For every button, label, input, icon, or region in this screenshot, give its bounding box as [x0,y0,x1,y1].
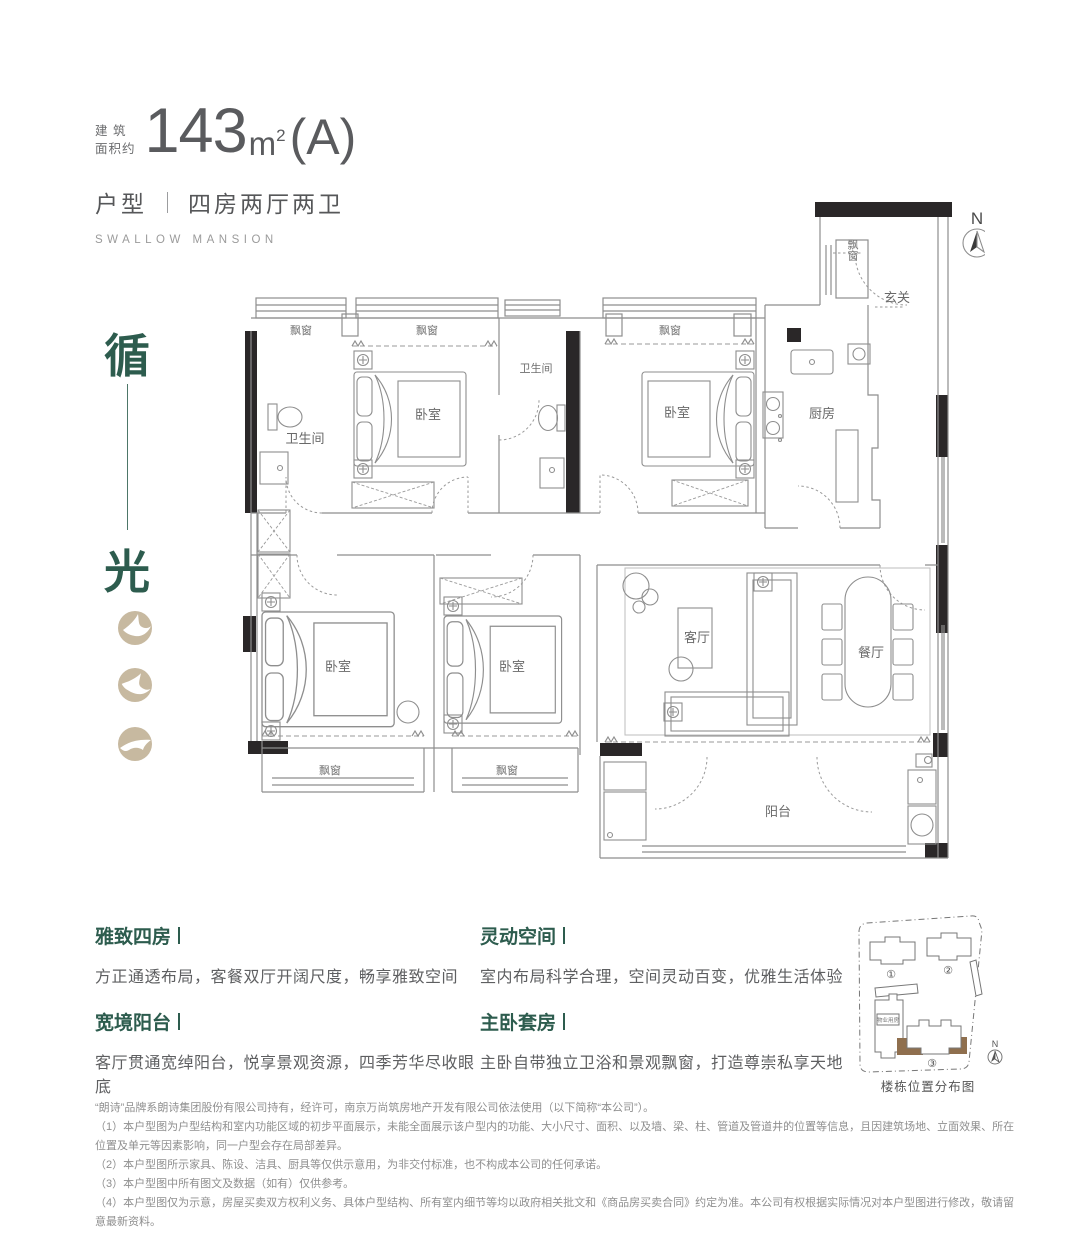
swallow-icon-2 [117,667,153,703]
bay-window-label-3: 飘窗 [659,323,681,337]
floorplan: 飘窗 飘窗 飘窗 飘窗 玄关 卫生间 卫生间 卧室 卧室 厨房 卧室 卧室 客厅… [225,190,985,890]
bay-window-label-5: 飘窗 [496,763,518,777]
building-1-outline [870,937,915,964]
building-3-number: ③ [927,1058,937,1070]
entry-label: 玄关 [884,290,910,305]
type-label: 户型 [95,185,147,219]
bay-window-label-4: 飘窗 [319,763,341,777]
bedroom-2-label: 卧室 [664,405,690,420]
dining-furniture [822,577,913,707]
area-unit: m2 [249,127,286,160]
feature-3-desc: 室内布局科学合理，空间灵动百变，优雅生活体验 [480,963,860,987]
north-arrow: N [963,209,985,257]
bathroom-2-fixtures [539,405,566,488]
building-1-number: ① [886,969,896,981]
feature-3-title: 灵动空间 [480,922,556,949]
area-variant: (A) [290,112,357,162]
bedroom-3-stool [397,701,419,723]
kitchen-fixtures [763,344,870,502]
motto-divider-line [127,384,128,530]
feature-title-bar [178,927,180,944]
property-room-label: 物业用房 [877,1016,900,1024]
living-room-furniture [623,573,797,736]
page: 建 筑 面积约 143 m2 (A) 户型 四房两厅两卫 SWALLOW MAN… [0,0,1080,1245]
kitchen-label: 厨房 [809,406,835,421]
balcony-fixtures [604,754,936,844]
feature-title-bar [178,1013,180,1030]
area-prefix-line1: 建 筑 [95,122,136,140]
feature-title-bar [563,1013,565,1030]
wardrobes [258,480,748,604]
site-map-caption: 楼栋位置分布图 [881,1079,976,1094]
area-unit-sup: 2 [276,126,285,145]
motto-char-top: 循 [104,320,150,386]
site-north-label: N [992,1039,999,1049]
disclaimer-line-4: （3）本户型图中所有图文及数据（如有）仅供参考。 [95,1175,1025,1194]
bedroom-4-label: 卧室 [499,659,525,674]
feature-2-title: 宽境阳台 [95,1008,171,1035]
area-prefix-label: 建 筑 面积约 [95,122,136,158]
feature-4-desc: 主卧自带独立卫浴和景观飘窗，打造尊崇私享天地 [480,1049,860,1073]
area-row: 建 筑 面积约 143 m2 (A) [95,100,356,163]
bed-bedroom-2 [642,372,754,466]
bedroom-1-label: 卧室 [415,407,441,422]
disclaimer-line-2: （1）本户型图为户型结构和室内功能区域的初步平面展示，未能全面展示该户型内的功能… [95,1118,1025,1156]
swallow-icon-1 [117,610,153,646]
feature-4-title: 主卧套房 [480,1008,556,1035]
bedside-tables [262,351,772,740]
balcony-label: 阳台 [765,804,791,819]
bed-bedroom-1 [354,372,466,466]
strip-building-right [970,960,982,996]
bedroom-3-label: 卧室 [325,659,351,674]
feature-block-1: 雅致四房 方正通透布局，客餐双厅开阔尺度，畅享雅致空间 [95,922,475,987]
bathroom-2-label: 卫生间 [520,361,553,375]
feature-title-bar [563,927,565,944]
feature-1-title: 雅致四房 [95,922,171,949]
bay-window-label-1: 飘窗 [290,323,312,337]
feature-block-3: 灵动空间 室内布局科学合理，空间灵动百变，优雅生活体验 [480,922,860,987]
window-dash-lines [262,339,930,742]
feature-1-desc: 方正通透布局，客餐双厅开阔尺度，畅享雅致空间 [95,963,475,987]
disclaimer-line-5: （4）本户型图仅为示意，房屋买卖双方权利义务、具体户型结构、所有室内细节等均以政… [95,1194,1025,1232]
bay-window-label-2: 飘窗 [416,323,438,337]
feature-block-4: 主卧套房 主卧自带独立卫浴和景观飘窗，打造尊崇私享天地 [480,1008,860,1073]
swallow-icon-3 [117,726,153,762]
living-room-label: 客厅 [684,630,710,645]
feature-2-desc: 客厅贯通宽绰阳台，悦享景观资源，四季芳华尽收眼底 [95,1049,475,1097]
dining-room-label: 餐厅 [858,645,884,660]
bay-window-label-entry: 飘窗 [846,239,859,262]
area-value: 143 [145,100,247,163]
type-divider [167,192,168,213]
doors [286,253,925,812]
building-2-outline [927,933,971,960]
site-map: 物业用房 ① ② ③ N 楼栋位置分布图 [845,902,1020,1097]
motto-char-bottom: 光 [104,536,150,602]
area-prefix-line2: 面积约 [95,140,136,158]
bathroom-1-label: 卫生间 [285,431,324,446]
walls [251,217,948,858]
structural-walls [243,202,952,858]
feature-block-2: 宽境阳台 客厅贯通宽绰阳台，悦享景观资源，四季芳华尽收眼底 [95,1008,475,1097]
disclaimer: “朗诗”品牌系朗诗集团股份有限公司持有，经许可，南京万尚筑房地产开发有限公司依法… [95,1099,1025,1232]
site-north-arrow: N [988,1039,1002,1064]
disclaimer-line-1: “朗诗”品牌系朗诗集团股份有限公司持有，经许可，南京万尚筑房地产开发有限公司依法… [95,1099,1025,1118]
disclaimer-line-3: （2）本户型图所示家具、陈设、洁具、厨具等仅供示意用，为非交付标准，也不构成本公… [95,1156,1025,1175]
building-2-number: ② [943,965,953,977]
north-label: N [971,209,983,228]
